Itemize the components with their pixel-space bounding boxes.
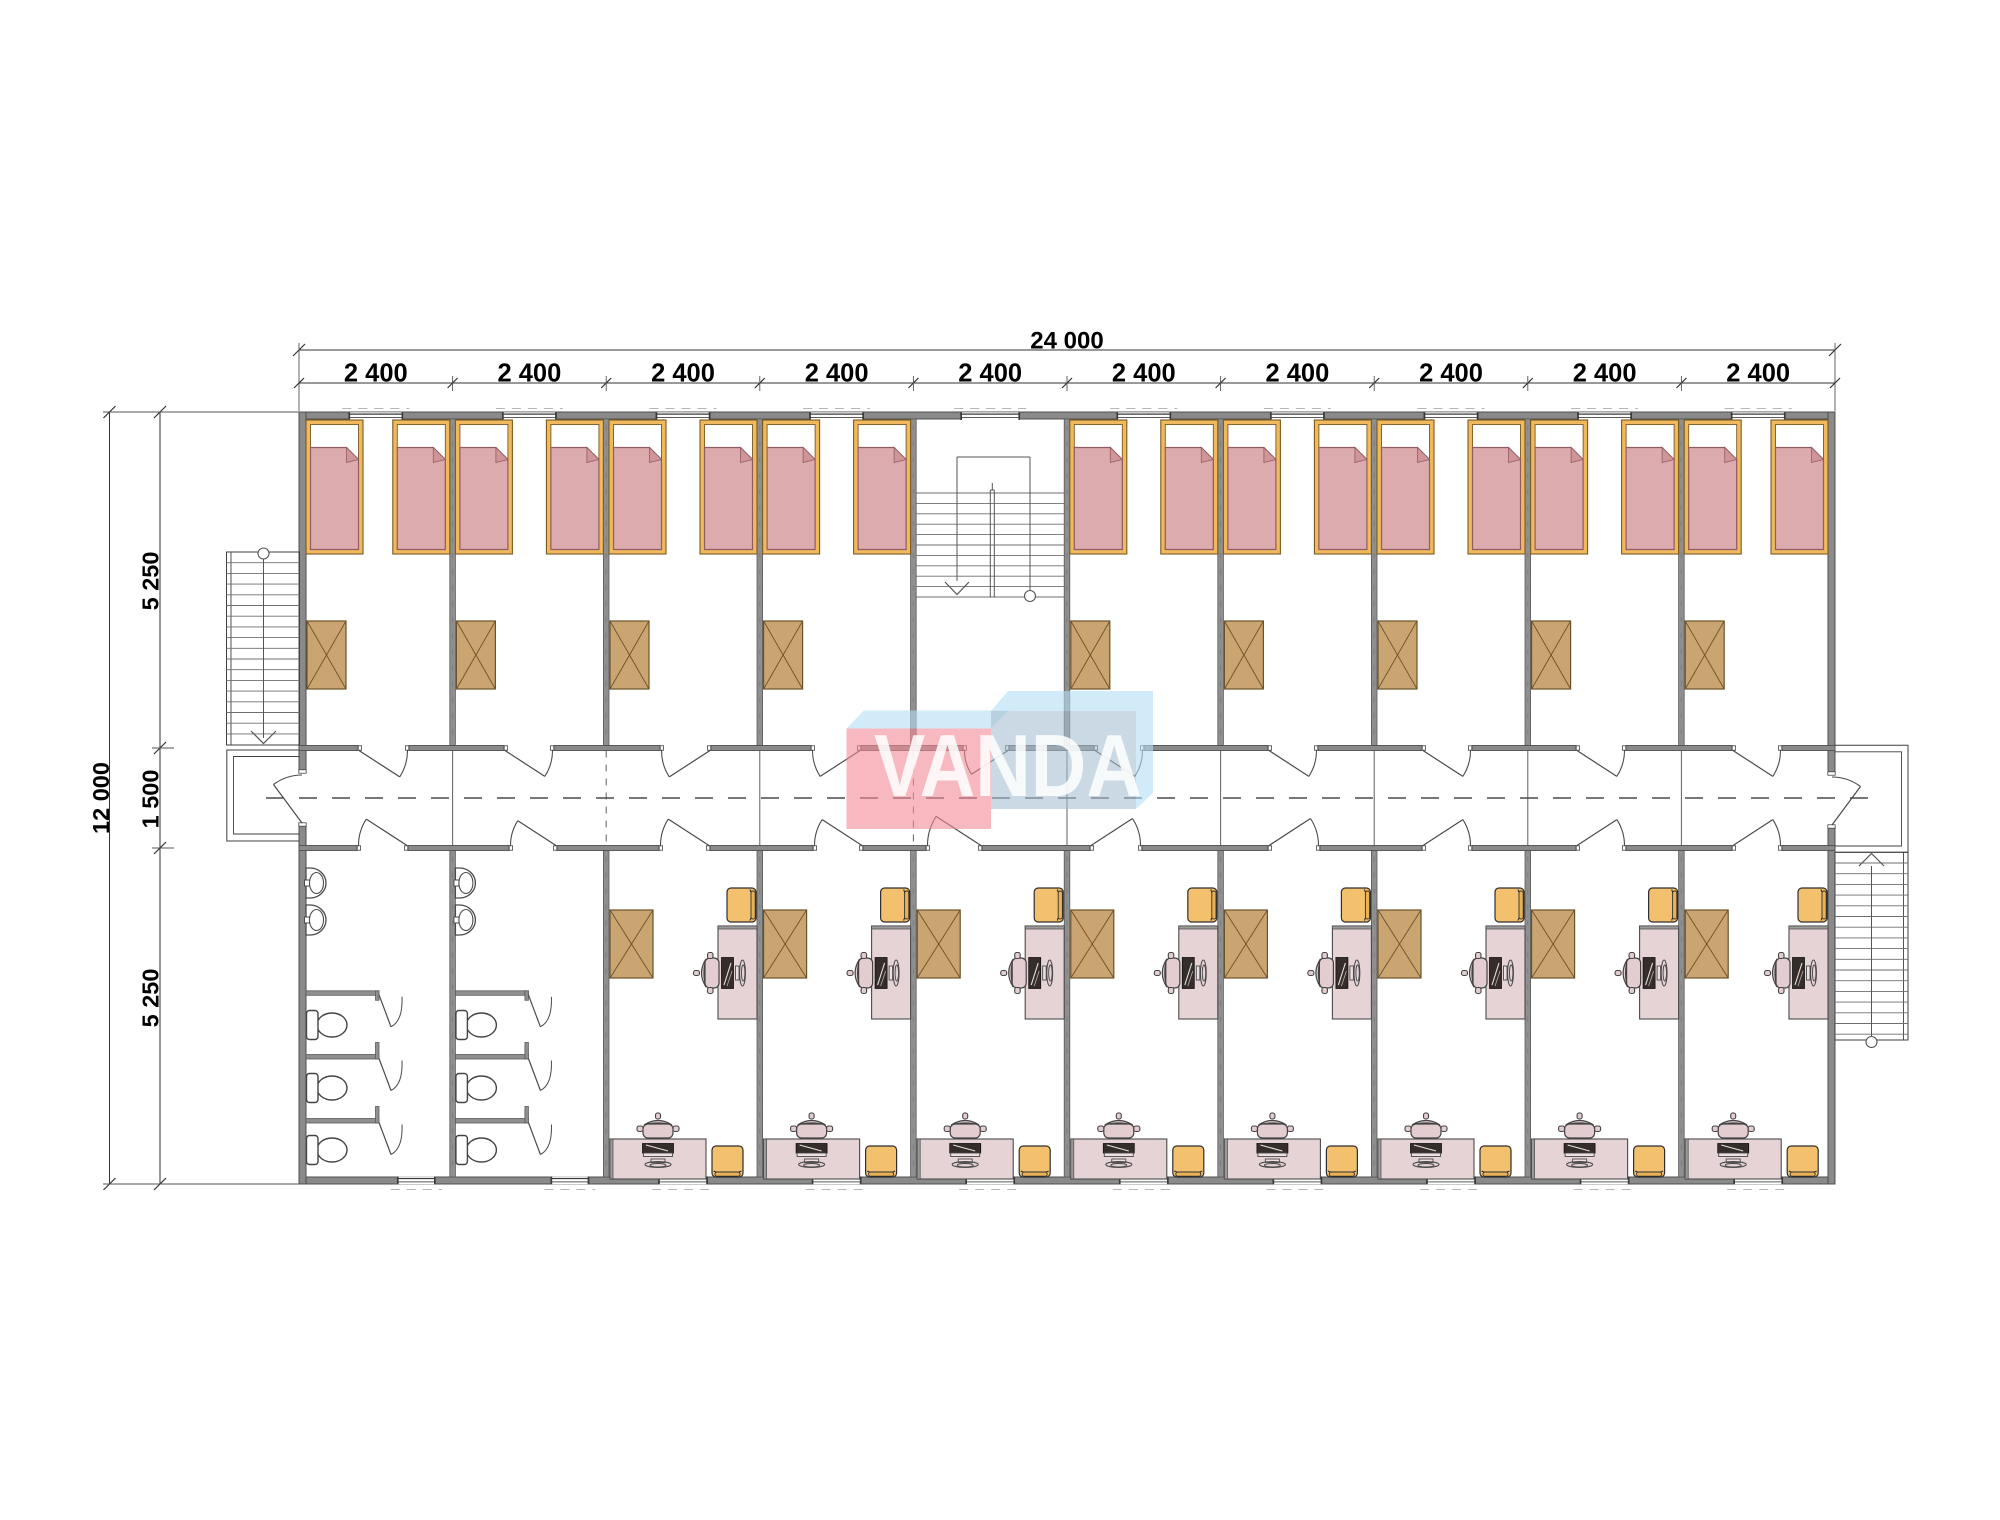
- svg-text:2 400: 2 400: [1265, 360, 1329, 388]
- svg-text:2 400: 2 400: [1726, 360, 1790, 388]
- svg-text:1 500: 1 500: [138, 770, 164, 829]
- svg-text:2 400: 2 400: [958, 360, 1022, 388]
- svg-text:5 250: 5 250: [138, 969, 164, 1028]
- svg-text:2 400: 2 400: [1112, 360, 1176, 388]
- svg-text:2 400: 2 400: [497, 360, 561, 388]
- svg-text:12 000: 12 000: [88, 762, 114, 834]
- svg-text:24 000: 24 000: [1030, 328, 1103, 355]
- svg-text:2 400: 2 400: [1573, 360, 1637, 388]
- svg-text:5 250: 5 250: [138, 552, 164, 611]
- svg-text:2 400: 2 400: [651, 360, 715, 388]
- svg-text:2 400: 2 400: [344, 360, 408, 388]
- svg-text:VANDA: VANDA: [874, 716, 1142, 815]
- svg-text:2 400: 2 400: [1419, 360, 1483, 388]
- svg-text:2 400: 2 400: [805, 360, 869, 388]
